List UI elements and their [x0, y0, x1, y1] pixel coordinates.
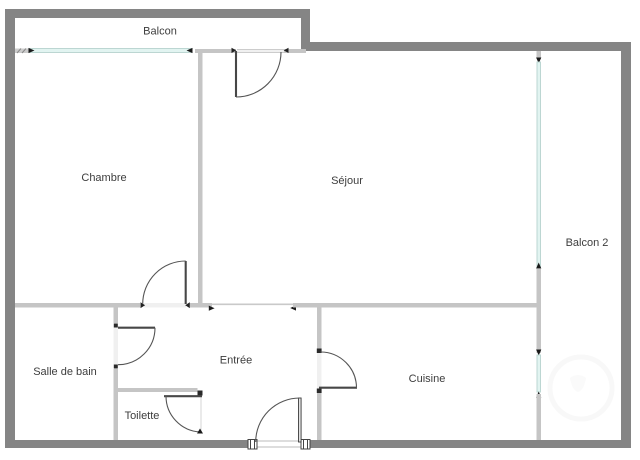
- svg-text:Séjour: Séjour: [331, 175, 363, 187]
- svg-text:Chambre: Chambre: [81, 172, 126, 184]
- svg-text:Cuisine: Cuisine: [409, 373, 446, 385]
- svg-text:Balcon: Balcon: [143, 26, 177, 38]
- svg-text:Entrée: Entrée: [220, 355, 252, 367]
- svg-text:Balcon 2: Balcon 2: [566, 237, 609, 249]
- svg-text:Toilette: Toilette: [125, 410, 160, 422]
- svg-text:Salle de bain: Salle de bain: [33, 366, 97, 378]
